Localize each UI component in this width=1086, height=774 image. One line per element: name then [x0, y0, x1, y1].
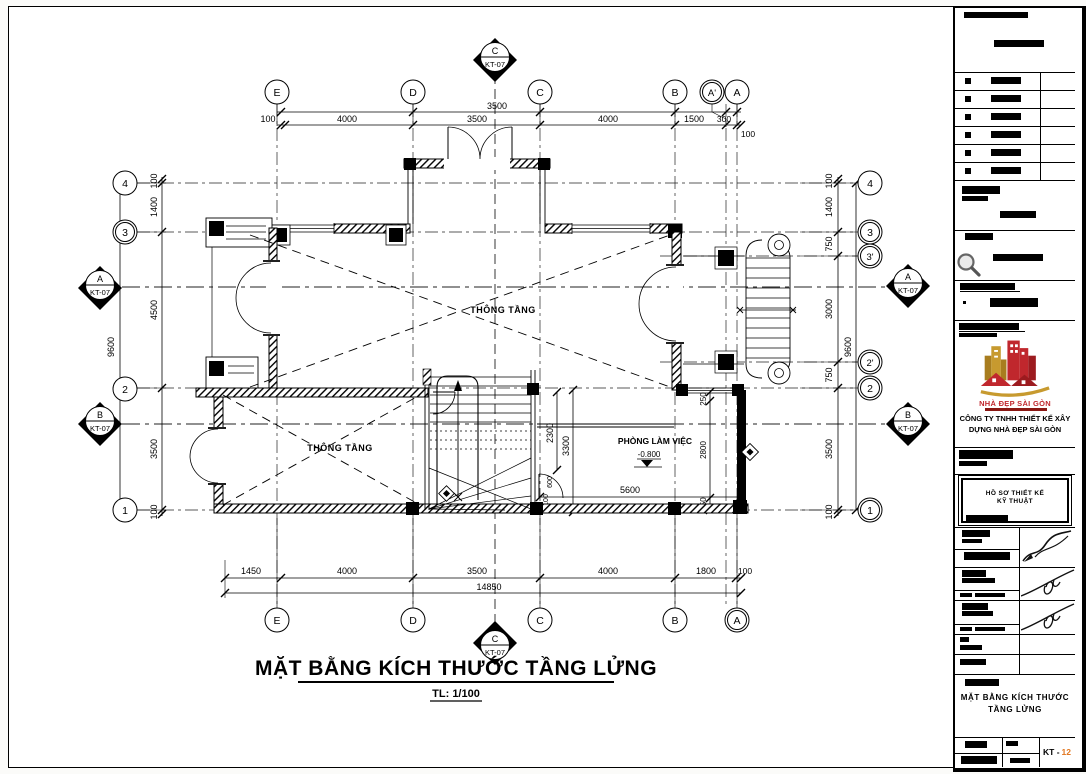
dim-label: 100 — [741, 129, 755, 139]
section-markers: C KT-07 C KT-07 A KT-07 B KT-07 — [78, 38, 930, 665]
divider — [1002, 737, 1003, 767]
dimension-ticks — [116, 108, 860, 597]
dim-label: 4000 — [598, 566, 618, 576]
redacted-bar — [959, 450, 1013, 459]
redacted-bar — [962, 196, 988, 201]
section-marker-c-top: C KT-07 — [473, 38, 517, 82]
office-label: PHÒNG LÀM VIỆC — [618, 435, 692, 446]
dim-label: 2800 — [699, 441, 708, 459]
redacted-bar — [990, 298, 1038, 307]
grid-label: 4 — [867, 178, 873, 190]
dim-label: 750 — [824, 236, 834, 251]
grid-label: 1 — [122, 505, 128, 517]
redacted-bar — [962, 530, 990, 537]
sheet-code-prefix: KT - — [1043, 747, 1060, 757]
divider — [955, 753, 1039, 754]
redacted-bar — [991, 149, 1021, 156]
grid-label: E — [273, 87, 280, 99]
divider — [1040, 72, 1041, 180]
svg-text:B: B — [97, 410, 103, 420]
stair — [423, 369, 539, 510]
grid-label: D — [409, 87, 417, 99]
divider — [955, 126, 1075, 127]
redacted-bar — [993, 254, 1043, 261]
redacted-bar — [962, 539, 982, 543]
plan-title: MẶT BẰNG KÍCH THƯỚC TẦNG LỬNG TL: 1/100 — [255, 656, 657, 701]
walls-layer — [190, 127, 748, 515]
room-labels: THÔNG TẦNG THÔNG TẦNG PHÒNG LÀM VIỆC -0.… — [307, 304, 692, 459]
dim-label: 3500 — [467, 566, 487, 576]
sheet-title-line: MẶT BẰNG KÍCH THƯỚC — [955, 692, 1075, 704]
redacted-bar — [964, 12, 1028, 18]
doc-type-line: KỸ THUẬT — [963, 498, 1067, 506]
grid-label: A' — [708, 88, 716, 99]
dim-label: 250 — [699, 392, 708, 406]
grid-label: A — [733, 615, 740, 627]
grid-label: D — [409, 615, 417, 627]
page-title: MẶT BẰNG KÍCH THƯỚC TẦNG LỬNG — [255, 656, 657, 680]
redacted-bar — [962, 611, 993, 616]
scale-label: TL: 1/100 — [432, 688, 480, 700]
extension-lines — [137, 104, 857, 608]
divider — [955, 590, 1019, 591]
company-name: CÔNG TY TNHH THIẾT KẾ XÂY DỰNG NHÀ ĐẸP S… — [955, 413, 1075, 435]
dim-label: 4000 — [337, 114, 357, 124]
dim-label: 14850 — [476, 582, 501, 592]
dim-label: 300 — [717, 114, 731, 124]
dim-label: 5600 — [620, 485, 640, 495]
company-line: DỰNG NHÀ ĐẸP SÀI GÒN — [955, 424, 1075, 435]
grid-label: 2 — [122, 384, 128, 396]
document-type-box: HỒ SƠ THIẾT KẾ KỸ THUẬT — [958, 475, 1072, 526]
dim-label: 100 — [260, 114, 275, 124]
redacted-bar — [991, 113, 1021, 120]
company-line: CÔNG TY TNHH THIẾT KẾ XÂY — [955, 413, 1075, 424]
dim-label: 9600 — [843, 337, 853, 357]
redacted-bar — [991, 95, 1021, 102]
dim-label: 1450 — [241, 566, 261, 576]
grid-label: 2' — [866, 358, 873, 369]
redacted-bar — [991, 131, 1021, 138]
sheet-title: MẶT BẰNG KÍCH THƯỚC TẦNG LỬNG — [955, 692, 1075, 716]
divider — [955, 674, 1075, 675]
divider — [955, 162, 1075, 163]
grid-label: C — [536, 615, 544, 627]
redacted-bar — [962, 570, 986, 577]
bullet-square — [965, 132, 971, 138]
dim-label: 3500 — [467, 114, 487, 124]
divider — [955, 90, 1075, 91]
bullet-square — [965, 78, 971, 84]
dim-label: 3500 — [487, 101, 507, 111]
dim-label: 1800 — [696, 566, 716, 576]
grid-label: 4 — [122, 178, 128, 190]
grid-label: A — [733, 87, 740, 99]
bullet-square — [965, 168, 971, 174]
divider — [955, 549, 1019, 550]
dim-label: 100 — [824, 504, 834, 519]
redacted-bar — [1000, 211, 1036, 218]
redacted-bar — [966, 515, 1008, 522]
dim-label: 100 — [149, 173, 159, 188]
svg-text:KT-07: KT-07 — [485, 648, 505, 657]
redacted-bar — [1006, 741, 1018, 746]
search-icon — [956, 252, 982, 278]
redacted-bar — [959, 323, 1019, 330]
logo-text: NHÀ ĐẸP SÀI GÒN — [955, 399, 1075, 408]
divider — [955, 634, 1075, 635]
grid-label: 3 — [122, 227, 128, 239]
redacted-bar — [960, 283, 1015, 290]
redacted-bar — [961, 756, 997, 764]
signature — [1021, 602, 1075, 632]
exterior-stair — [683, 234, 796, 384]
section-marker-b-left: B KT-07 — [78, 402, 122, 446]
svg-text:B: B — [905, 410, 911, 420]
divider — [955, 144, 1075, 145]
void-lower-label: THÔNG TẦNG — [307, 442, 373, 453]
svg-text:KT-07: KT-07 — [898, 286, 918, 295]
dim-label: 3000 — [824, 299, 834, 319]
redacted-bar — [959, 461, 987, 466]
dim-label: 100 — [738, 566, 752, 576]
dim-label: 9600 — [106, 337, 116, 357]
company-logo — [979, 336, 1051, 400]
divider — [955, 180, 1075, 181]
redacted-bar — [991, 167, 1021, 174]
redacted-bar — [985, 408, 1047, 411]
divider — [955, 230, 1075, 231]
redacted-bar — [962, 186, 1000, 194]
dim-label: 3300 — [561, 436, 571, 456]
dim-label: 1400 — [824, 197, 834, 217]
section-marker-a-left: A KT-07 — [78, 266, 122, 310]
bullet-square — [965, 114, 971, 120]
grid-label: E — [273, 615, 280, 627]
floor-plan: 3500 100 4000 3500 4000 1500 300 100 145… — [0, 0, 953, 774]
redacted-bar — [965, 679, 999, 686]
void-cross-lines — [223, 235, 670, 505]
svg-text:A: A — [97, 274, 103, 284]
redacted-bar — [963, 301, 966, 304]
dim-label: 750 — [824, 367, 834, 382]
section-marker-b-right: B KT-07 — [886, 402, 930, 446]
redacted-bar — [991, 77, 1021, 84]
sheet-code-number: 12 — [1062, 747, 1071, 757]
svg-text:C: C — [492, 634, 499, 644]
sheet-code: KT - 12 — [1039, 737, 1075, 767]
void-upper-label: THÔNG TẦNG — [470, 304, 536, 315]
grid-label: C — [536, 87, 544, 99]
svg-text:KT-07: KT-07 — [485, 60, 505, 69]
svg-text:A: A — [905, 272, 911, 282]
dim-label: 4500 — [149, 300, 159, 320]
divider — [955, 280, 1075, 281]
redacted-bar — [962, 603, 988, 610]
office-level-label: -0.800 — [638, 450, 661, 459]
redacted-bar — [960, 291, 1020, 292]
dimension-labels: 3500 100 4000 3500 4000 1500 300 100 145… — [106, 101, 853, 592]
signature — [1021, 568, 1075, 598]
redacted-bar — [975, 627, 1005, 631]
grid-label: B — [671, 615, 678, 627]
divider — [955, 447, 1075, 448]
divider — [955, 527, 1075, 528]
sheet-title-line: TẦNG LỬNG — [955, 704, 1075, 716]
redacted-bar — [962, 578, 995, 583]
redacted-bar — [1010, 758, 1030, 763]
grid-label: B — [671, 87, 678, 99]
redacted-bar — [960, 627, 972, 631]
divider — [955, 72, 1075, 73]
redacted-bar — [965, 233, 993, 240]
grid-label: 2 — [867, 383, 873, 395]
redacted-bar — [960, 637, 969, 642]
dim-label: 4000 — [598, 114, 618, 124]
dim-label: 1500 — [684, 114, 704, 124]
svg-text:KT-07: KT-07 — [898, 424, 918, 433]
dim-label: 100 — [824, 173, 834, 188]
section-marker-a-right: A KT-07 — [886, 264, 930, 308]
divider — [955, 108, 1075, 109]
redacted-bar — [964, 552, 1010, 560]
dim-label: 3500 — [149, 439, 159, 459]
divider — [955, 624, 1019, 625]
svg-text:KT-07: KT-07 — [90, 424, 110, 433]
redacted-bar — [960, 593, 972, 597]
divider — [955, 654, 1075, 655]
title-block: NHÀ ĐẸP SÀI GÒN CÔNG TY TNHH THIẾT KẾ XÂ… — [953, 6, 1086, 772]
bullet-square — [965, 150, 971, 156]
redacted-bar — [960, 645, 982, 650]
redacted-bar — [975, 593, 1005, 597]
dim-label: 4000 — [337, 566, 357, 576]
bullet-square — [965, 96, 971, 102]
grid-label: 1 — [867, 505, 873, 517]
svg-text:C: C — [492, 46, 499, 56]
redacted-bar — [965, 741, 987, 748]
dim-label: 1400 — [149, 197, 159, 217]
divider — [955, 600, 1075, 601]
dim-label: 2300 — [545, 423, 555, 443]
redacted-bar — [994, 40, 1044, 47]
grid-label: 3' — [866, 252, 873, 263]
signature — [1021, 529, 1075, 565]
doc-type-line: HỒ SƠ THIẾT KẾ — [963, 490, 1067, 498]
grid-axes — [122, 74, 886, 627]
grid-label: 3 — [867, 227, 873, 239]
redacted-bar — [959, 331, 1025, 332]
dim-label: 3500 — [824, 439, 834, 459]
dim-label: 100 — [149, 504, 159, 519]
divider — [955, 320, 1075, 321]
svg-text:KT-07: KT-07 — [90, 288, 110, 297]
dim-label: 600 — [547, 476, 554, 488]
redacted-bar — [960, 659, 986, 665]
